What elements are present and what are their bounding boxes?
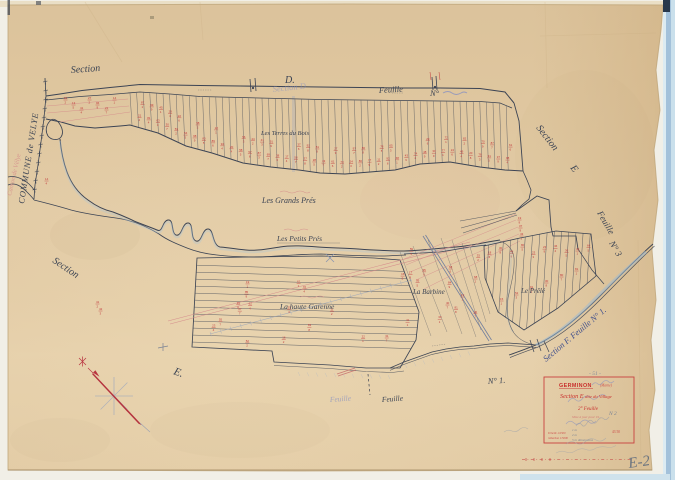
- svg-text:43: 43: [322, 159, 326, 163]
- svg-text:70: 70: [481, 140, 485, 144]
- svg-text:30: 30: [432, 149, 436, 153]
- svg-text:41: 41: [80, 106, 84, 110]
- svg-text:22: 22: [362, 335, 366, 339]
- svg-text:98: 98: [506, 156, 510, 160]
- svg-text:19: 19: [237, 301, 241, 305]
- svg-text:29: 29: [426, 137, 430, 141]
- svg-text:61: 61: [331, 159, 335, 163]
- svg-text:43: 43: [520, 232, 524, 236]
- svg-text:31: 31: [488, 154, 492, 158]
- svg-text:55: 55: [219, 318, 223, 322]
- svg-text:78: 78: [478, 153, 482, 157]
- svg-text:14: 14: [113, 96, 117, 100]
- svg-text:23: 23: [543, 245, 547, 249]
- svg-text:16: 16: [401, 272, 405, 276]
- svg-text:(Marne): (Marne): [600, 384, 613, 388]
- svg-text:94: 94: [221, 142, 225, 146]
- svg-text:64: 64: [587, 244, 591, 248]
- svg-text:69: 69: [267, 152, 271, 156]
- svg-text:20: 20: [230, 145, 234, 149]
- svg-text:68: 68: [449, 265, 453, 269]
- svg-text:52: 52: [246, 339, 250, 343]
- svg-text:14: 14: [45, 177, 49, 181]
- svg-text:61: 61: [297, 279, 301, 283]
- svg-text:18: 18: [488, 250, 492, 254]
- svg-text:E-2: E-2: [626, 453, 651, 472]
- svg-text:N°: N°: [429, 88, 440, 98]
- svg-text:77: 77: [442, 149, 446, 153]
- svg-text:49: 49: [460, 150, 464, 154]
- svg-text:52: 52: [515, 291, 519, 295]
- svg-text:43: 43: [405, 154, 409, 158]
- svg-text:23: 23: [532, 250, 536, 254]
- svg-text:33: 33: [477, 253, 481, 257]
- svg-text:19: 19: [518, 216, 522, 220]
- svg-text:37: 37: [519, 224, 523, 228]
- svg-text:43 50: 43 50: [612, 430, 620, 434]
- svg-text:54: 54: [184, 131, 188, 135]
- svg-text:57: 57: [248, 150, 252, 154]
- svg-text:97: 97: [353, 147, 357, 151]
- svg-text:81: 81: [316, 145, 320, 149]
- svg-text:13: 13: [72, 101, 76, 105]
- svg-text:20: 20: [469, 151, 473, 155]
- svg-text:85: 85: [245, 290, 249, 294]
- svg-text:27: 27: [238, 307, 242, 311]
- svg-text:21: 21: [105, 106, 109, 110]
- svg-text:31: 31: [385, 334, 389, 338]
- svg-text:36: 36: [565, 249, 569, 253]
- svg-text:48: 48: [423, 150, 427, 154]
- svg-text:réduction 1/5000: réduction 1/5000: [548, 436, 568, 440]
- svg-text:23: 23: [212, 324, 216, 328]
- svg-text:44: 44: [251, 137, 255, 141]
- svg-text:29: 29: [169, 110, 173, 114]
- svg-text:N° 1.: N° 1.: [486, 375, 505, 386]
- svg-text:95: 95: [416, 279, 420, 283]
- svg-text:81: 81: [575, 267, 579, 271]
- svg-text:58: 58: [196, 121, 200, 125]
- svg-text:37: 37: [497, 155, 501, 159]
- svg-text:11: 11: [377, 157, 380, 161]
- svg-text:Section E dite du Village: Section E dite du Village: [560, 393, 612, 400]
- svg-text:62: 62: [249, 302, 253, 306]
- svg-text:92: 92: [307, 144, 311, 148]
- svg-text:41: 41: [96, 300, 100, 304]
- svg-text:95: 95: [423, 268, 427, 272]
- svg-text:56: 56: [242, 135, 246, 139]
- svg-text:30: 30: [166, 123, 170, 127]
- svg-text:Le Prêlé: Le Prêlé: [520, 287, 546, 295]
- svg-text:82: 82: [463, 137, 467, 141]
- svg-text:Echelle 1/2500: Echelle 1/2500: [547, 431, 566, 435]
- svg-text:2° Feuille: 2° Feuille: [578, 407, 599, 412]
- svg-text:17: 17: [409, 271, 413, 275]
- svg-text:87: 87: [141, 100, 145, 104]
- svg-text:61: 61: [509, 143, 513, 147]
- svg-text:41: 41: [406, 318, 410, 322]
- svg-text:74: 74: [414, 151, 418, 155]
- svg-text:30: 30: [545, 279, 549, 283]
- svg-text:63: 63: [156, 119, 160, 123]
- svg-text:42: 42: [99, 307, 103, 311]
- svg-text:16: 16: [282, 335, 286, 339]
- svg-text:91: 91: [270, 139, 274, 143]
- svg-text:37: 37: [304, 157, 308, 161]
- svg-text:68: 68: [396, 156, 400, 160]
- svg-text:59: 59: [410, 247, 414, 251]
- svg-text:80: 80: [521, 243, 525, 247]
- svg-text:65: 65: [389, 144, 393, 148]
- svg-text:15: 15: [500, 297, 504, 301]
- svg-text:86: 86: [359, 159, 363, 163]
- svg-text:77: 77: [368, 158, 372, 162]
- svg-text:30: 30: [438, 315, 442, 319]
- svg-text:72: 72: [445, 136, 449, 140]
- svg-text:81: 81: [147, 116, 151, 120]
- svg-text:17: 17: [285, 155, 289, 159]
- svg-text:24: 24: [350, 160, 354, 164]
- svg-text:89: 89: [212, 139, 216, 143]
- svg-text:45: 45: [159, 106, 163, 110]
- svg-text:19: 19: [246, 280, 250, 284]
- svg-text:80: 80: [560, 273, 564, 277]
- svg-text:46: 46: [554, 244, 558, 248]
- svg-text:78: 78: [380, 144, 384, 148]
- svg-text:2 m: 2 m: [572, 433, 578, 437]
- svg-text:81: 81: [455, 305, 459, 309]
- svg-text:50: 50: [294, 156, 298, 160]
- svg-text:99: 99: [150, 103, 154, 107]
- svg-text:30: 30: [499, 246, 503, 250]
- svg-text:87: 87: [491, 141, 495, 145]
- svg-text:- 51 -: - 51 -: [589, 371, 601, 377]
- svg-text:27: 27: [334, 146, 338, 150]
- svg-text:28: 28: [313, 158, 317, 162]
- svg-text:Les Grands Prés: Les Grands Prés: [261, 196, 316, 205]
- svg-text:72: 72: [303, 285, 307, 289]
- svg-text:92: 92: [386, 157, 390, 161]
- svg-text:27: 27: [88, 96, 92, 100]
- svg-text:68: 68: [474, 275, 478, 279]
- svg-text:La Barbine: La Barbine: [412, 288, 445, 296]
- svg-text:Section: Section: [70, 63, 100, 76]
- svg-text:Les Petits Prés: Les Petits Prés: [276, 234, 322, 243]
- svg-text:37: 37: [297, 143, 301, 147]
- svg-text:18: 18: [215, 126, 219, 130]
- svg-text:73: 73: [340, 160, 344, 164]
- svg-text:58: 58: [239, 148, 243, 152]
- svg-text:1 m: 1 m: [572, 428, 578, 432]
- svg-text:80: 80: [202, 136, 206, 140]
- svg-text:42: 42: [576, 247, 580, 251]
- svg-text:91: 91: [64, 96, 68, 100]
- svg-text:87: 87: [258, 151, 262, 155]
- svg-text:24: 24: [451, 148, 455, 152]
- svg-text:Feuille: Feuille: [381, 393, 404, 404]
- svg-text:84: 84: [448, 281, 452, 285]
- svg-text:La haute Garenne: La haute Garenne: [279, 302, 335, 311]
- svg-text:41: 41: [261, 138, 265, 142]
- svg-text:40: 40: [446, 301, 450, 305]
- svg-text:96: 96: [96, 101, 100, 105]
- svg-text:N 2: N 2: [608, 411, 617, 417]
- svg-text:46: 46: [474, 310, 478, 314]
- svg-text:19: 19: [461, 293, 465, 297]
- svg-text:68: 68: [193, 134, 197, 138]
- svg-text:Feuille: Feuille: [378, 84, 404, 95]
- svg-text:Mise à jour pour 19..: Mise à jour pour 19..: [571, 415, 601, 419]
- svg-text:Feuille: Feuille: [329, 393, 352, 404]
- svg-text:83: 83: [308, 323, 312, 327]
- svg-text:53: 53: [175, 127, 179, 131]
- svg-text:38: 38: [276, 154, 280, 158]
- svg-text:21: 21: [138, 113, 142, 117]
- svg-text:86: 86: [362, 146, 366, 150]
- svg-text:22: 22: [178, 114, 182, 118]
- svg-text:Les Terres du Bois: Les Terres du Bois: [260, 130, 310, 137]
